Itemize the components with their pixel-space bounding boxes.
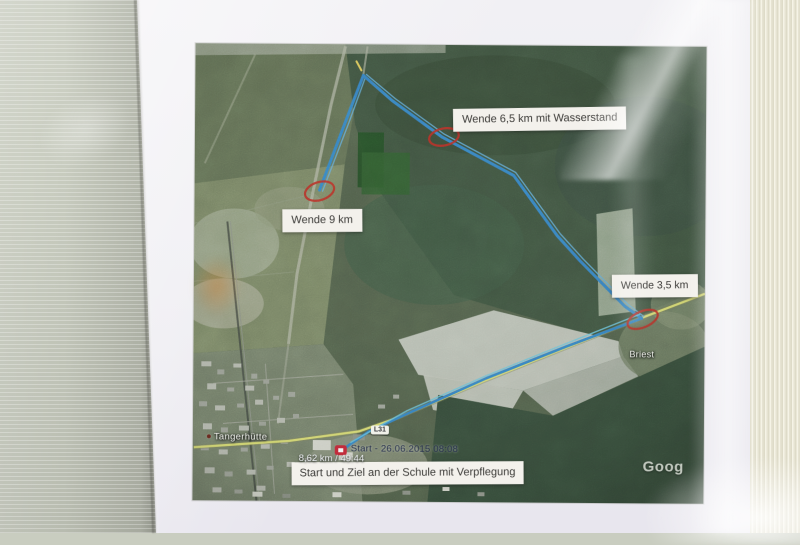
- gps-start-label: Start - 26.06.2015 08:08: [351, 443, 458, 455]
- road-badge-l31: L31: [371, 425, 389, 434]
- town-name: Briest: [629, 349, 654, 359]
- satellite-map: Wende 6,5 km mit Wasserstand Wende 9 km …: [192, 43, 706, 504]
- gps-track-stats: 8,62 km / 49:44: [299, 453, 365, 464]
- plastic-sleeve-edge: [750, 0, 800, 533]
- town-label-tangerhuette: Tangerhütte: [207, 431, 268, 442]
- town-dot-icon: [207, 434, 211, 438]
- start-ziel-label: Start und Ziel an der Schule mit Verpfle…: [292, 461, 524, 485]
- wende-9-label: Wende 9 km: [282, 209, 362, 233]
- town-name: Tangerhütte: [214, 431, 268, 442]
- wende-35-label: Wende 3,5 km: [612, 274, 698, 297]
- town-label-briest: Briest: [629, 349, 654, 359]
- google-watermark: Goog: [643, 458, 684, 475]
- satellite-imagery: [192, 43, 706, 504]
- wende-65-label: Wende 6,5 km mit Wasserstand: [453, 106, 627, 131]
